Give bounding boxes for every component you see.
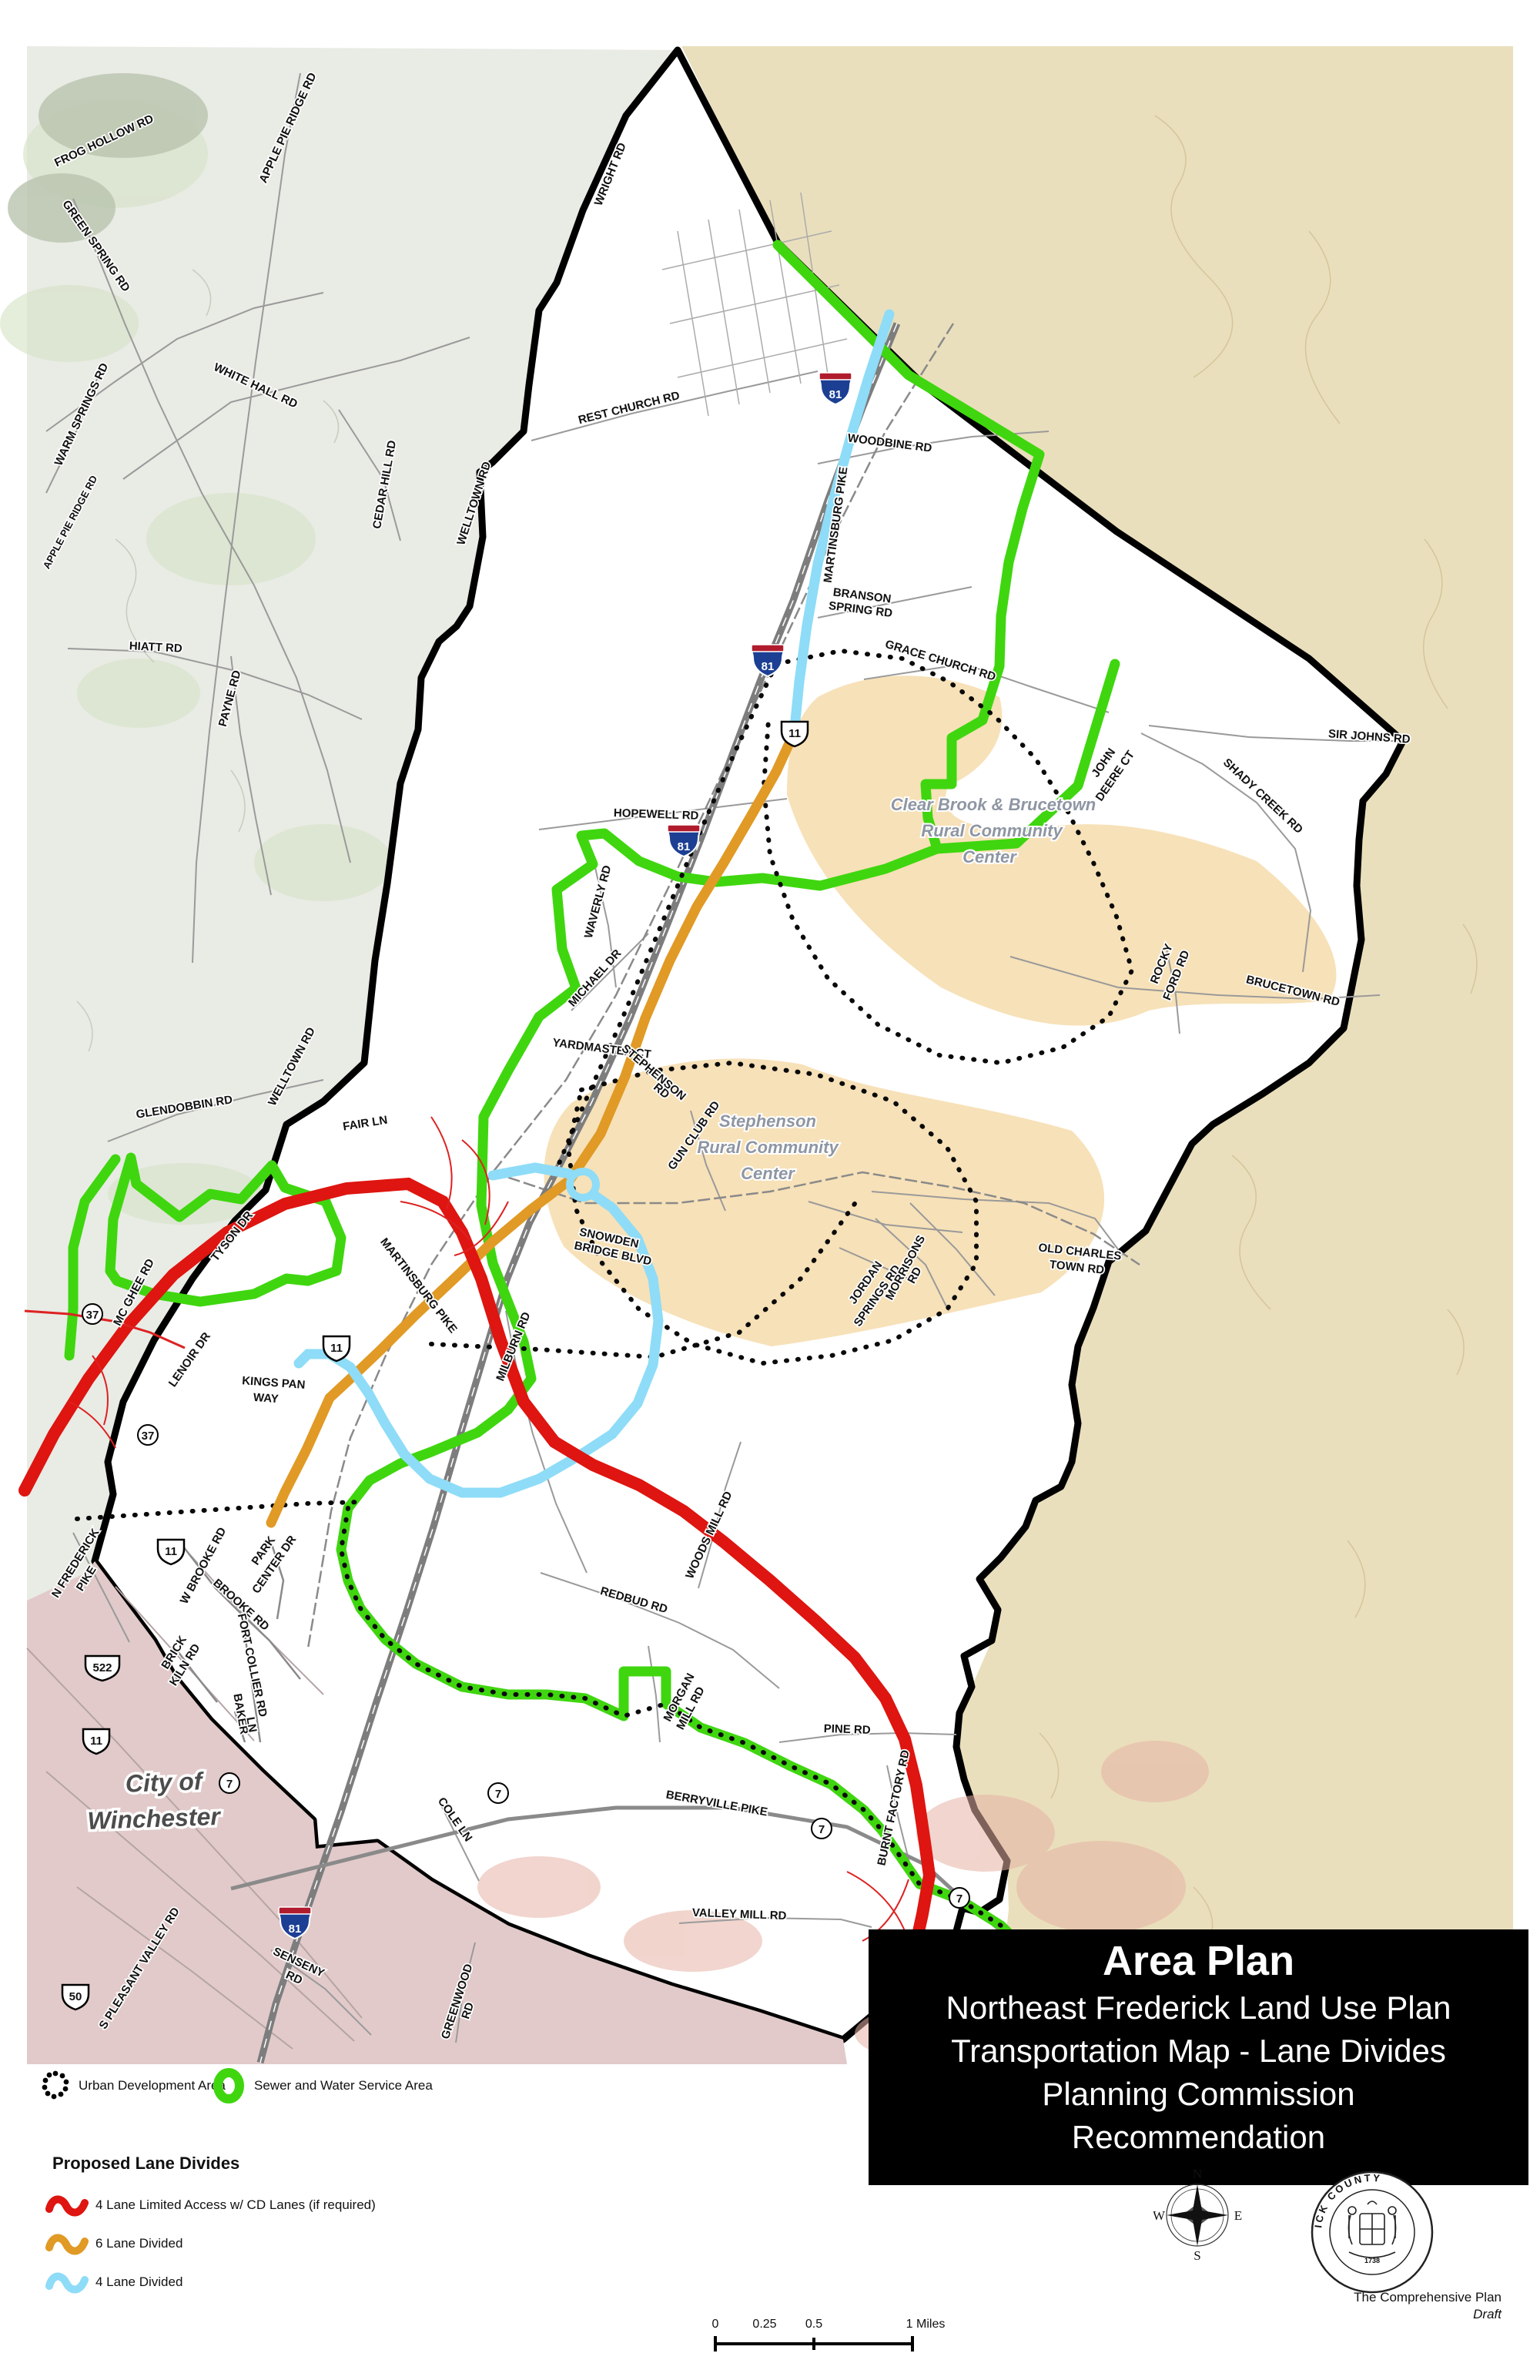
rural-center-label: Center: [741, 1164, 795, 1183]
scale-bar-line: [715, 2336, 912, 2352]
legend-item-limited-access: 4 Lane Limited Access w/ CD Lanes (if re…: [45, 2189, 376, 2221]
sewer-water-area-icon: [209, 2064, 248, 2107]
route7-number: 7: [819, 1823, 825, 1836]
scale-tick-label: 0: [712, 2318, 719, 2331]
us522-number: 522: [92, 1661, 112, 1674]
i81-number: 81: [829, 388, 842, 401]
map-subtitle: Recommendation: [869, 2116, 1528, 2159]
i81-number: 81: [678, 840, 691, 853]
limited-access-label: 4 Lane Limited Access w/ CD Lanes (if re…: [95, 2197, 376, 2213]
compass-n: N: [1193, 2167, 1202, 2181]
us11-number: 11: [165, 1545, 177, 1558]
route7-shield: 7: [219, 1773, 239, 1793]
uda-legend-label: Urban Development Area: [79, 2078, 226, 2093]
us50-number: 50: [69, 1990, 82, 2003]
compass-e: E: [1234, 2208, 1242, 2223]
route7-shield: 7: [949, 1888, 969, 1908]
blue-wavy-line-icon: [45, 2266, 89, 2298]
route7-number: 7: [226, 1778, 233, 1791]
rural-center-label: Rural Community: [697, 1138, 839, 1157]
i81-number: 81: [289, 1922, 302, 1936]
scale-tick-label: 1 Miles: [906, 2318, 946, 2331]
proposed-lane-divides-heading: Proposed Lane Divides: [52, 2154, 239, 2174]
compass-w: W: [1153, 2208, 1166, 2223]
seal-year: 1738: [1364, 2257, 1380, 2264]
title-block: Area Plan Northeast Frederick Land Use P…: [869, 1929, 1528, 2185]
scale-bar: 0 0.25 0.5 1 Miles: [693, 2311, 1001, 2365]
sewer-legend-label: Sewer and Water Service Area: [254, 2078, 433, 2093]
area-plan-map: 81 81 81 81 11 11 11 11 522 50 7 7 7 7 3…: [0, 0, 1540, 2064]
road-label: PINE RD: [823, 1722, 871, 1737]
route37-shield: 37: [138, 1425, 158, 1445]
legend-item-four-lane: 4 Lane Divided: [45, 2266, 182, 2298]
legend-sewer: Sewer and Water Service Area: [209, 2064, 433, 2107]
scale-tick-label: 0.5: [805, 2318, 822, 2331]
rural-center-label: Stephenson: [719, 1111, 816, 1131]
red-wavy-line-icon: [45, 2189, 89, 2221]
us11-number: 11: [90, 1735, 102, 1748]
map-title: Area Plan: [869, 1929, 1528, 1986]
route37-shield: 37: [82, 1304, 102, 1324]
road-label: WAY: [253, 1391, 279, 1406]
legend-item-six-lane: 6 Lane Divided: [45, 2227, 182, 2260]
legend-uda: Urban Development Area: [38, 2067, 226, 2104]
credits-line: The Comprehensive Plan: [1201, 2289, 1501, 2306]
credits-draft: Draft: [1201, 2306, 1501, 2323]
road-label: HIATT RD: [129, 639, 182, 655]
route7-shield: 7: [488, 1783, 508, 1803]
compass-rose: N E S W: [1153, 2158, 1246, 2262]
route7-number: 7: [956, 1892, 962, 1906]
rural-center-label: Clear Brook & Brucetown: [891, 795, 1096, 814]
four-lane-label: 4 Lane Divided: [95, 2274, 182, 2290]
scanned-plan-page: { "title_block": { "line1": "Area Plan",…: [0, 0, 1540, 2380]
compass-s: S: [1193, 2248, 1200, 2262]
six-lane-label: 6 Lane Divided: [95, 2236, 182, 2251]
route37-number: 37: [86, 1309, 99, 1322]
frederick-county-seal: FREDERICK COUNTY 1738: [1303, 2161, 1441, 2304]
road-label: LN: [243, 1716, 259, 1734]
urban-development-area-icon: [38, 2067, 72, 2104]
route37-number: 37: [142, 1430, 155, 1443]
i81-number: 81: [762, 660, 775, 673]
route7-shield: 7: [812, 1819, 832, 1839]
city-label: Winchester: [87, 1802, 222, 1835]
us11-number: 11: [330, 1342, 343, 1355]
scale-tick-label: 0.25: [752, 2318, 776, 2331]
map-subtitle: Planning Commission: [869, 2073, 1528, 2116]
orange-wavy-line-icon: [45, 2227, 89, 2260]
rural-center-label: Rural Community: [921, 821, 1063, 840]
city-label: City of: [125, 1767, 205, 1798]
credits: The Comprehensive Plan Draft: [1201, 2289, 1501, 2323]
map-subtitle: Transportation Map - Lane Divides: [869, 2030, 1528, 2073]
route7-number: 7: [495, 1788, 501, 1801]
us11-number: 11: [788, 727, 801, 740]
rural-center-label: Center: [962, 847, 1017, 867]
map-subtitle: Northeast Frederick Land Use Plan: [869, 1986, 1528, 2030]
